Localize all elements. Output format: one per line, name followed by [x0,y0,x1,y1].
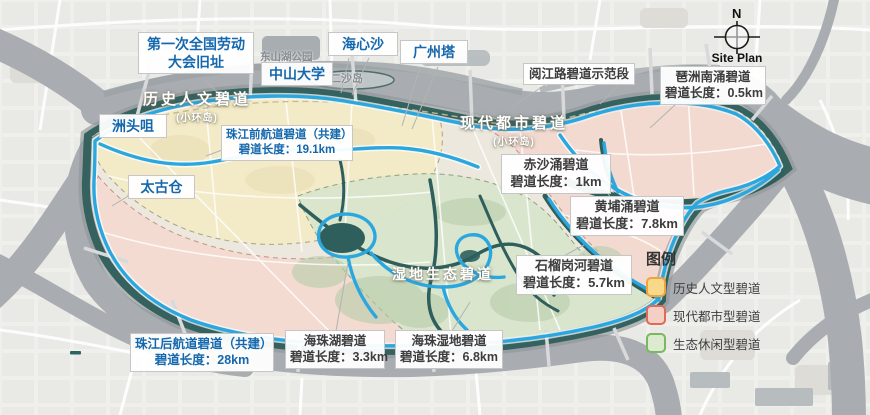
pier-mark [70,351,81,355]
site-plan-map: 第一次全国劳动 大会旧址 中山大学 海心沙 广州塔 洲头咀 太古仓 阅江路碧道示… [0,0,870,415]
label-chisha-creek-greenway: 赤沙涌碧道 碧道长度：1km [501,154,611,194]
route-name: 海珠湖碧道 [290,333,380,349]
zone-title-eco: 湿地生态碧道 [382,264,504,284]
legend-item-modern: 现代都市型碧道 [646,305,788,325]
legend-swatch-modern [646,305,666,325]
label-taikoo-wharf: 太古仓 [128,175,195,199]
legend-title: 图例 [646,248,788,269]
route-name: 海珠湿地碧道 [400,333,498,349]
route-length: 碧道长度：6.8km [400,349,498,365]
route-name: 石榴岗河碧道 [521,258,627,275]
legend-label-historic: 历史人文型碧道 [673,278,761,297]
label-zhoutouzui: 洲头咀 [99,114,167,138]
label-haixinsha: 海心沙 [328,32,398,56]
label-haizhu-lake-greenway: 海珠湖碧道 碧道长度：3.3km [285,330,385,369]
legend-label-eco: 生态休闲型碧道 [673,334,761,353]
label-first-national-labor-congress-site: 第一次全国劳动 大会旧址 [138,32,254,74]
route-name: 珠江后航道碧道（共建） [135,336,269,352]
route-name: 琶洲南涌碧道 [665,69,761,85]
label-yuejiang-demo-section: 阅江路碧道示范段 [523,63,635,85]
compass-north-label: N [732,6,741,21]
route-name: 黄埔涌碧道 [575,199,679,216]
route-length: 碧道长度：7.8km [575,216,679,233]
route-length: 碧道长度：28km [135,352,269,368]
legend-item-eco: 生态休闲型碧道 [646,333,788,353]
label-canton-tower: 广州塔 [400,40,468,64]
label-shiliugang-river-greenway: 石榴岗河碧道 碧道长度：5.7km [516,255,632,295]
label-pazhou-south-creek-greenway: 琶洲南涌碧道 碧道长度：0.5km [660,66,766,105]
route-length: 碧道长度：5.7km [521,275,627,292]
legend-swatch-historic [646,277,666,297]
route-name: 赤沙涌碧道 [506,157,606,174]
legend: 图例 历史人文型碧道 现代都市型碧道 生态休闲型碧道 [646,248,788,361]
legend-swatch-eco [646,333,666,353]
zone-title-modern: 现代都市碧道 (小环岛) [452,112,576,148]
label-haizhu-wetland-greenway: 海珠湿地碧道 碧道长度：6.8km [395,330,503,369]
poi-name-line2: 大会旧址 [143,53,249,71]
place-ershadao: 二沙岛 [330,70,363,86]
legend-item-historic: 历史人文型碧道 [646,277,788,297]
route-length: 碧道长度：19.1km [226,143,348,158]
poi-name-line1: 第一次全国劳动 [143,35,249,53]
route-length: 碧道长度：0.5km [665,85,761,101]
label-sun-yat-sen-university: 中山大学 [261,62,333,86]
label-huangpu-creek-greenway: 黄埔涌碧道 碧道长度：7.8km [570,196,684,236]
route-length: 碧道长度：3.3km [290,349,380,365]
label-front-channel-greenway: 珠江前航道碧道（共建） 碧道长度：19.1km [221,125,353,161]
route-name: 珠江前航道碧道（共建） [226,128,348,143]
route-length: 碧道长度：1km [506,174,606,191]
legend-label-modern: 现代都市型碧道 [673,306,761,325]
label-back-channel-greenway: 珠江后航道碧道（共建） 碧道长度：28km [130,333,274,372]
compass-caption: Site Plan [706,51,768,65]
